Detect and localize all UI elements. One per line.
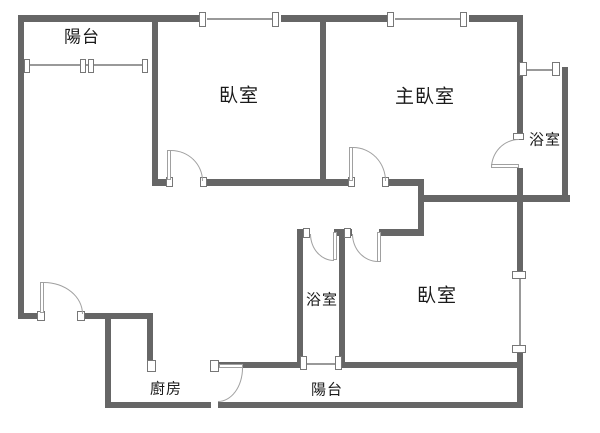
floor-plan: 陽台 臥室 主臥室 浴室 浴室 臥室 廚房 陽台: [0, 0, 600, 433]
window-symbol: [88, 59, 94, 73]
wall-segment: [152, 15, 158, 183]
room-label-master-bedroom: 主臥室: [395, 88, 455, 107]
window-symbol: [199, 12, 206, 27]
wall-segment: [379, 229, 424, 236]
window-line: [306, 363, 336, 365]
wall-segment: [281, 15, 390, 22]
wall-segment: [297, 229, 303, 368]
wall-segment: [469, 15, 523, 22]
door-arc: [491, 139, 519, 168]
door-arc: [44, 282, 83, 314]
wall-end-cap: [147, 360, 156, 372]
wall-segment: [339, 229, 345, 368]
window-symbol: [24, 59, 30, 73]
window-symbol: [300, 356, 307, 370]
wall-segment: [418, 195, 570, 202]
window-line: [395, 18, 463, 20]
wall-segment: [517, 168, 523, 273]
window-line: [519, 279, 521, 347]
room-label-bathroom-upper: 浴室: [529, 133, 561, 148]
window-line: [207, 18, 275, 20]
room-label-kitchen: 廚房: [150, 382, 182, 397]
window-symbol: [512, 271, 526, 279]
room-label-bedroom-top: 臥室: [219, 87, 259, 106]
door-arc: [171, 150, 203, 181]
wall-segment: [18, 15, 203, 22]
wall-segment: [203, 179, 355, 186]
window-symbol: [460, 12, 467, 27]
room-label-bedroom-bottom: 臥室: [417, 287, 457, 306]
window-symbol: [387, 12, 394, 27]
wall-segment: [562, 67, 568, 202]
door-arc: [353, 147, 386, 181]
door-arc: [310, 234, 334, 261]
window-symbol: [272, 12, 279, 27]
door-jamb: [344, 228, 351, 238]
wall-segment: [418, 179, 424, 236]
door-strike-gap: [211, 402, 218, 408]
room-label-balcony-bottom: 陽台: [311, 383, 343, 398]
door-arc: [218, 368, 243, 402]
window-symbol: [552, 62, 560, 76]
window-symbol: [80, 59, 86, 73]
room-label-balcony-top: 陽台: [64, 29, 100, 46]
window-symbol: [142, 59, 148, 73]
window-symbol: [519, 62, 527, 76]
window-symbol: [335, 356, 342, 370]
wall-segment: [320, 15, 326, 183]
wall-segment: [517, 15, 523, 140]
door-jamb: [303, 228, 310, 238]
wall-segment: [107, 402, 523, 408]
window-symbol: [512, 345, 526, 353]
wall-segment: [105, 318, 111, 408]
wall-segment: [147, 319, 153, 363]
wall-segment: [83, 313, 153, 319]
room-label-bathroom-lower: 浴室: [306, 293, 338, 308]
door-arc: [352, 234, 378, 262]
wall-segment: [517, 353, 523, 408]
wall-segment: [339, 362, 523, 368]
